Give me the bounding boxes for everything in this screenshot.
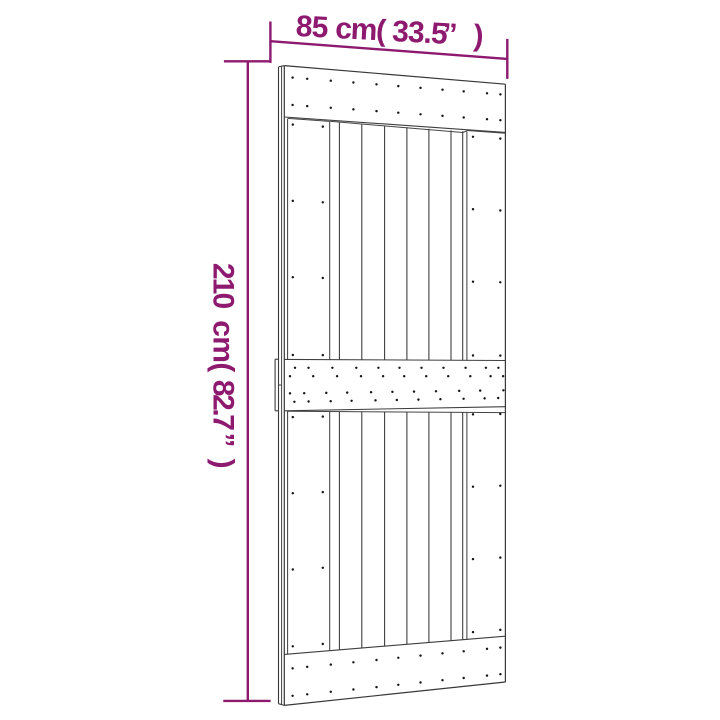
svg-text:210cm(82.7”): 210cm(82.7”) xyxy=(207,263,240,469)
